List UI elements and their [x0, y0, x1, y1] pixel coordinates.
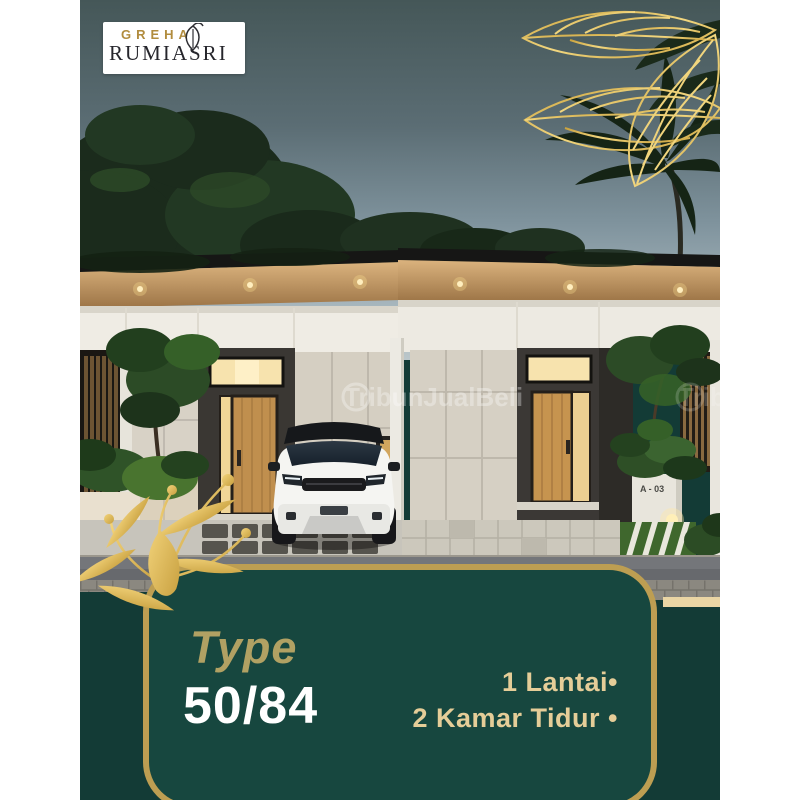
logo-box: GREHA RUMIASRI: [103, 22, 245, 74]
leaf-icon: [182, 23, 206, 53]
suv-car: [268, 422, 400, 550]
watermark: TribunJualBeli: [343, 382, 523, 412]
gold-flower-decoration: [80, 448, 251, 633]
watermark-partial: TribunJualBeli: [677, 382, 720, 412]
brand-main: RUMIASRI: [109, 41, 228, 66]
feature-list: 1 Lantai• 2 Kamar Tidur •: [412, 664, 618, 736]
property-poster: A - 03: [80, 0, 720, 800]
unit-label: A - 03: [640, 484, 664, 494]
feature-item-floors: 1 Lantai•: [412, 664, 618, 700]
feature-item-bedrooms: 2 Kamar Tidur •: [412, 700, 618, 736]
type-value: 50/84: [183, 676, 318, 736]
svg-text:TribunJualBeli: TribunJualBeli: [678, 382, 720, 412]
watermark-text: TribunJualBeli: [344, 382, 523, 412]
poster-canvas: A - 03: [0, 0, 800, 800]
gold-leaves-decoration: [515, 0, 720, 190]
cream-accent-strip: [663, 597, 720, 607]
